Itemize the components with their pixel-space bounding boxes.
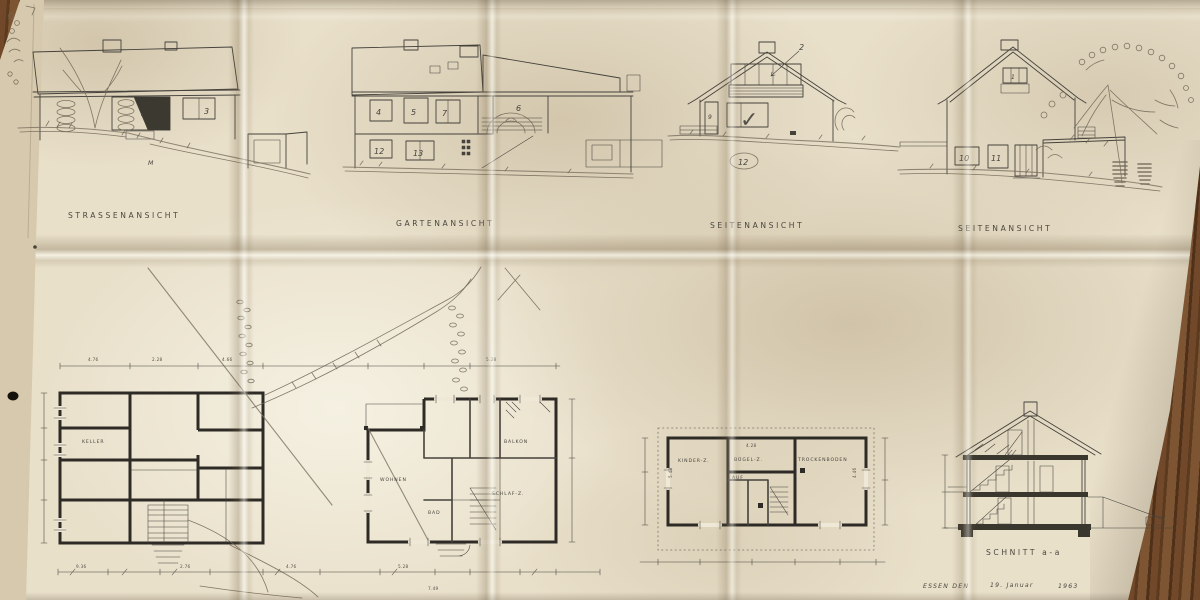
footer-year: 1963 <box>1058 583 1079 590</box>
dim-5: 7.49 <box>428 586 439 591</box>
pencil-scribbles-top-left <box>7 6 35 84</box>
door-number-9: 9 <box>708 114 712 121</box>
dim-8: 4.66 <box>222 357 233 362</box>
hole-punch <box>8 392 19 401</box>
basement-stair <box>148 505 188 563</box>
caption-side-elevation-a: SEITENANSICHT <box>710 221 804 230</box>
vent-bricks <box>462 140 470 155</box>
rubble-wall-left <box>237 300 254 383</box>
dim-6: 4.76 <box>88 357 99 362</box>
window-number-1: 1 <box>1011 74 1015 81</box>
window-number-12: 12 <box>374 147 384 156</box>
room-label-schlaf: SCHLAF-Z. <box>492 491 524 497</box>
window-number-4: 4 <box>376 108 381 117</box>
caption-street-elevation: STRASSENANSICHT <box>68 211 180 220</box>
room-label-auf: AUF <box>732 475 744 481</box>
room-label-buegel: BÜGEL-Z. <box>734 456 763 463</box>
window-number-11: 11 <box>991 154 1001 163</box>
window-number-13: 13 <box>413 149 423 158</box>
m-mark: M <box>148 160 155 167</box>
room-label-balkon: BALKON <box>504 439 528 445</box>
window-number-10: 10 <box>959 154 969 163</box>
section-drawing: SCHNITT a-a <box>944 402 1175 557</box>
attic-stair <box>770 487 788 515</box>
callout-number-2: 2 <box>799 43 804 52</box>
room-label-bad: BAD <box>428 510 441 516</box>
room-label-trocken: TROCKENBODEN <box>797 457 848 463</box>
window-number-5: 5 <box>411 108 416 117</box>
caption-section: SCHNITT a-a <box>986 548 1062 557</box>
title-block: ESSEN DEN 19. Januar 1963 <box>923 582 1079 590</box>
rubble-wall-right <box>449 306 468 391</box>
checkmark: ✓ <box>740 108 758 133</box>
annotation-12: 12 <box>738 158 748 167</box>
outbuilding-sketch <box>586 140 662 167</box>
plan-attic: KINDER-Z. BÜGEL-Z. AUF TROCKENBODEN 4.28… <box>658 428 874 550</box>
plan-ground-floor: WOHNEN SCHLAF-Z. BALKON BAD <box>364 395 556 556</box>
caption-garden-elevation: GARTENANSICHT <box>396 219 494 228</box>
dim-attic-width: 4.28 <box>746 443 757 448</box>
window-number-3: 3 <box>204 107 209 116</box>
dim-3: 4.76 <box>286 564 297 569</box>
room-label-kinder: KINDER-Z. <box>678 458 710 464</box>
tree-sketch <box>57 48 134 132</box>
elevation-garden: 4 5 7 6 12 13 GART <box>343 40 662 228</box>
dim-9: 5.28 <box>486 357 497 362</box>
elevation-side-a: 2 ✓ 9 12 SEITENANSICHT <box>668 42 900 230</box>
plan-basement: KELLER <box>54 393 263 563</box>
pencil-scribbles-top-right <box>1079 43 1193 108</box>
dim-4: 5.28 <box>398 564 409 569</box>
dim-attic-left: 5.48 <box>668 467 673 478</box>
window-number-7: 7 <box>442 109 448 118</box>
photo-of-blueprint: 3 M STRASSENANSICHT <box>0 0 1200 600</box>
elevation-side-b: 1 10 11 <box>898 40 1178 233</box>
dim-7: 2.28 <box>152 357 163 362</box>
room-label-keller: KELLER <box>82 439 105 445</box>
window-number-6: 6 <box>516 104 521 113</box>
footer-place: ESSEN DEN <box>923 583 969 590</box>
room-label-wohnen: WOHNEN <box>380 477 407 483</box>
large-tree-sketch <box>1036 85 1178 186</box>
dim-1: 9.36 <box>76 564 87 569</box>
elevation-street: 3 M STRASSENANSICHT <box>18 40 310 220</box>
attic-windows <box>664 470 870 529</box>
footer-date: 19. Januar <box>990 582 1034 589</box>
dim-2: 2.76 <box>180 564 191 569</box>
dim-attic-right: 4.46 <box>852 467 857 478</box>
blueprint-drawing: 3 M STRASSENANSICHT <box>0 0 1200 600</box>
paper-marks <box>7 4 1194 401</box>
site-sketch <box>148 267 540 598</box>
caption-side-elevation-b: SEITENANSICHT <box>958 224 1052 233</box>
